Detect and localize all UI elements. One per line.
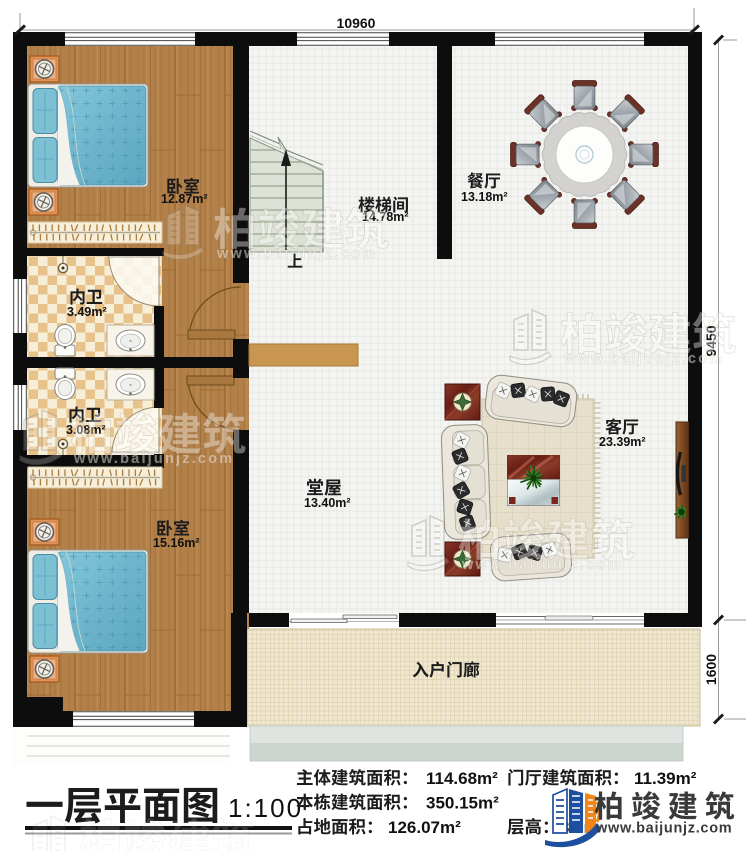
svg-text:15.16m²: 15.16m² xyxy=(153,536,200,550)
svg-text:126.07m²: 126.07m² xyxy=(388,818,461,837)
svg-text:3.49m²: 3.49m² xyxy=(67,305,107,319)
svg-text:11.39m²: 11.39m² xyxy=(634,769,697,788)
svg-text:1600: 1600 xyxy=(703,654,719,685)
svg-text:114.68m²: 114.68m² xyxy=(426,769,498,788)
svg-text:www.baijunjz.com: www.baijunjz.com xyxy=(595,821,732,837)
svg-text:www.baijunjz.com: www.baijunjz.com xyxy=(563,351,724,367)
svg-text:1:100: 1:100 xyxy=(228,793,303,823)
svg-text:350.15m²: 350.15m² xyxy=(426,794,499,813)
svg-text:13.40m²: 13.40m² xyxy=(304,496,351,510)
svg-text:23.39m²: 23.39m² xyxy=(599,435,646,449)
svg-text:10960: 10960 xyxy=(337,15,376,31)
svg-text:www.baijunjz.com: www.baijunjz.com xyxy=(461,557,622,573)
svg-text:www.baijunjz.com: www.baijunjz.com xyxy=(73,451,234,467)
svg-text:13.18m²: 13.18m² xyxy=(461,190,508,204)
svg-text:www.baijunjz.com: www.baijunjz.com xyxy=(216,246,377,262)
